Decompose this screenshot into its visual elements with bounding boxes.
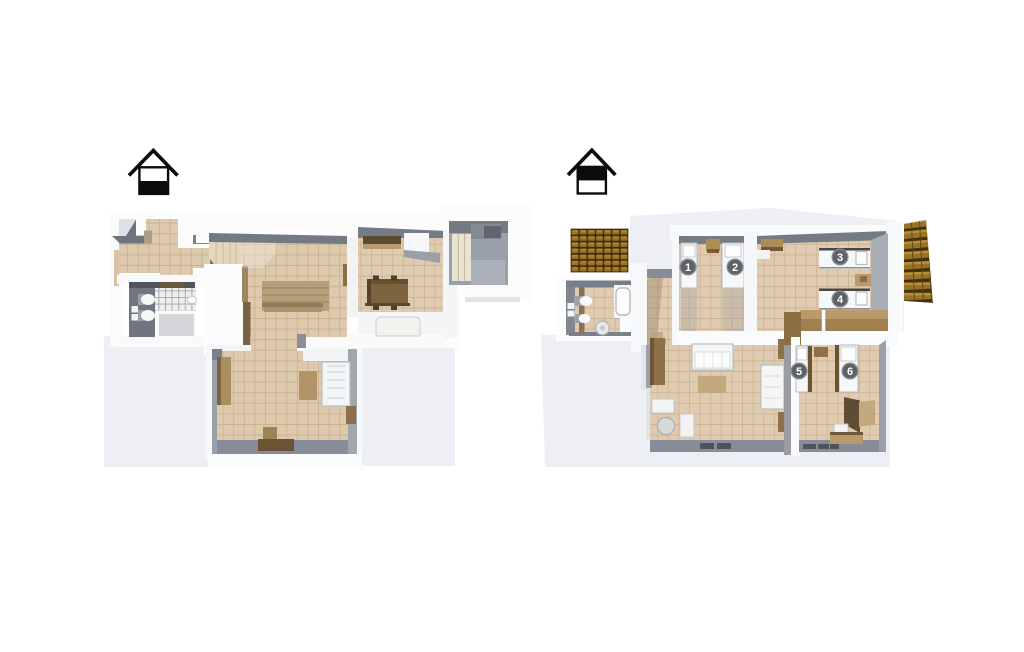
svg-text:4: 4 (837, 294, 844, 306)
svg-text:5: 5 (796, 366, 802, 378)
svg-text:3: 3 (837, 252, 843, 264)
svg-text:6: 6 (847, 366, 853, 378)
svg-text:1: 1 (685, 262, 691, 274)
svg-text:2: 2 (732, 262, 738, 274)
